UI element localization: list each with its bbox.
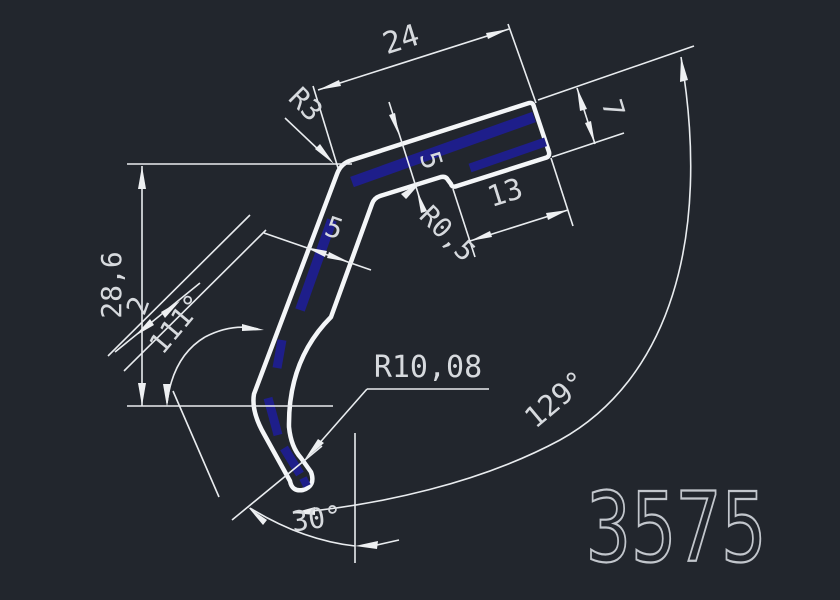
dim-r0-5: R0,5 bbox=[401, 182, 481, 268]
dim-129-label: 129° bbox=[518, 364, 593, 435]
dim-r3: R3 bbox=[282, 81, 334, 164]
dim-24-label: 24 bbox=[379, 18, 424, 62]
dim-30-label: 30° bbox=[289, 499, 344, 539]
dim-r3-label: R3 bbox=[282, 81, 329, 128]
dim-r10-08-label: R10,08 bbox=[374, 350, 482, 385]
part-number: 3575 bbox=[586, 473, 766, 585]
dim-111: 111° bbox=[142, 287, 264, 407]
cad-drawing-canvas: 28,6 24 7 13 5 5 2 bbox=[0, 0, 840, 600]
dim-28-6: 28,6 bbox=[95, 166, 146, 406]
dim-r10-08: R10,08 bbox=[305, 350, 489, 459]
dim-7: 7 bbox=[577, 88, 631, 144]
dim-30: 30° bbox=[248, 499, 399, 549]
dim-7-label: 7 bbox=[595, 95, 631, 121]
dim-24: 24 bbox=[318, 18, 509, 90]
cad-drawing: 28,6 24 7 13 5 5 2 bbox=[0, 0, 840, 600]
dim-13: 13 bbox=[470, 171, 568, 241]
